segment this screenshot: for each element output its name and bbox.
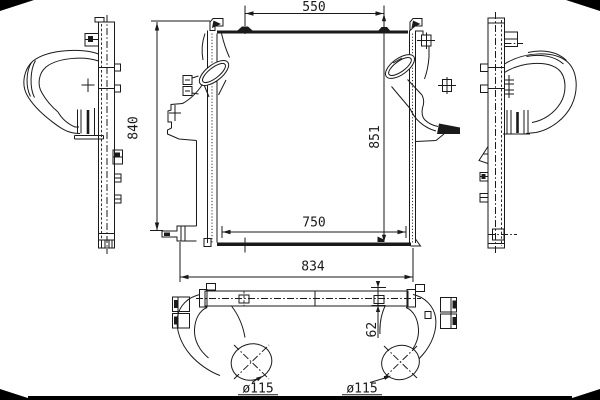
left-hose-clamp	[75, 108, 104, 139]
dim-left-height-label: 840	[127, 116, 142, 139]
right-bar-bottom	[488, 229, 517, 244]
frame-bottom-bar	[28, 396, 572, 400]
left-side-view	[24, 15, 123, 254]
photo-frame-marks	[0, 0, 600, 400]
right-tank	[382, 19, 460, 247]
dim-right-pipe-diameter-label: ø115	[346, 382, 377, 397]
dim-core-width-label: 750	[302, 216, 325, 231]
dim-left-pipe-diameter-label: ø115	[242, 382, 273, 397]
right-elbow	[377, 295, 456, 385]
dim-right-height-label: 851	[368, 125, 383, 148]
drawing-canvas: 550 840 851 750	[0, 0, 600, 400]
frame-corner-top-left	[0, 0, 34, 11]
left-top-bracket	[85, 34, 99, 47]
right-hose	[505, 51, 577, 133]
right-double-cross-mark	[504, 75, 514, 98]
dim-right-pipe-diameter: ø115	[342, 376, 391, 397]
frame-corner-top-right	[566, 0, 600, 11]
dim-core-width: 750	[222, 216, 406, 239]
right-tank-foot-wedge	[437, 124, 460, 135]
dim-top-width: 550	[245, 0, 384, 34]
right-hose-clamp	[503, 110, 530, 134]
dim-right-height: 851	[368, 6, 386, 243]
left-bar-clamps	[99, 64, 123, 203]
right-side-view	[479, 12, 576, 254]
right-bar-clamps	[479, 64, 505, 202]
left-tank-foot	[162, 226, 211, 247]
left-cross-mark	[82, 79, 95, 93]
dim-overall-width: 834	[180, 242, 413, 282]
left-tank	[162, 19, 233, 247]
dimensions: 550 840 851 750	[127, 0, 414, 397]
dim-overall-width-label: 834	[301, 260, 325, 275]
dim-pipe-offset: 62	[365, 281, 386, 338]
dim-pipe-offset-label: 62	[365, 322, 380, 338]
intercooler-technical-drawing: 550 840 851 750	[0, 0, 600, 400]
dim-top-width-label: 550	[302, 0, 325, 15]
dim-left-height: 840	[127, 21, 211, 231]
left-elbow	[173, 295, 277, 386]
bottom-view	[173, 284, 457, 386]
